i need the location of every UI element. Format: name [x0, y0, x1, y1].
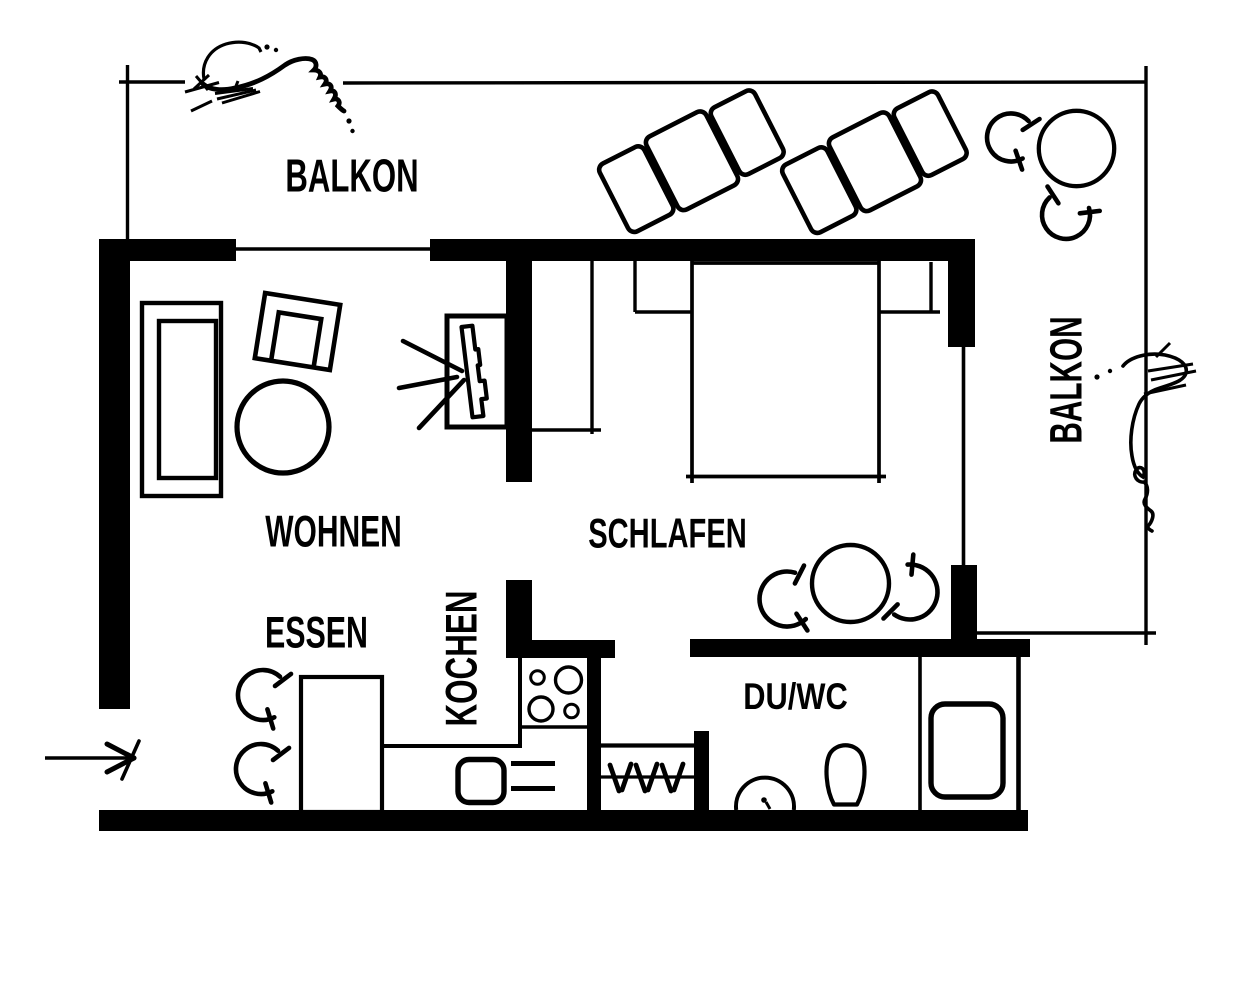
svg-text:DU/WC: DU/WC	[743, 676, 848, 717]
svg-text:SCHLAFEN: SCHLAFEN	[588, 511, 747, 557]
svg-text:WOHNEN: WOHNEN	[265, 508, 402, 557]
svg-text:BALKON: BALKON	[285, 150, 418, 202]
svg-text:BALKON: BALKON	[1041, 316, 1092, 443]
svg-text:KOCHEN: KOCHEN	[437, 590, 487, 726]
svg-text:ESSEN: ESSEN	[265, 609, 368, 658]
